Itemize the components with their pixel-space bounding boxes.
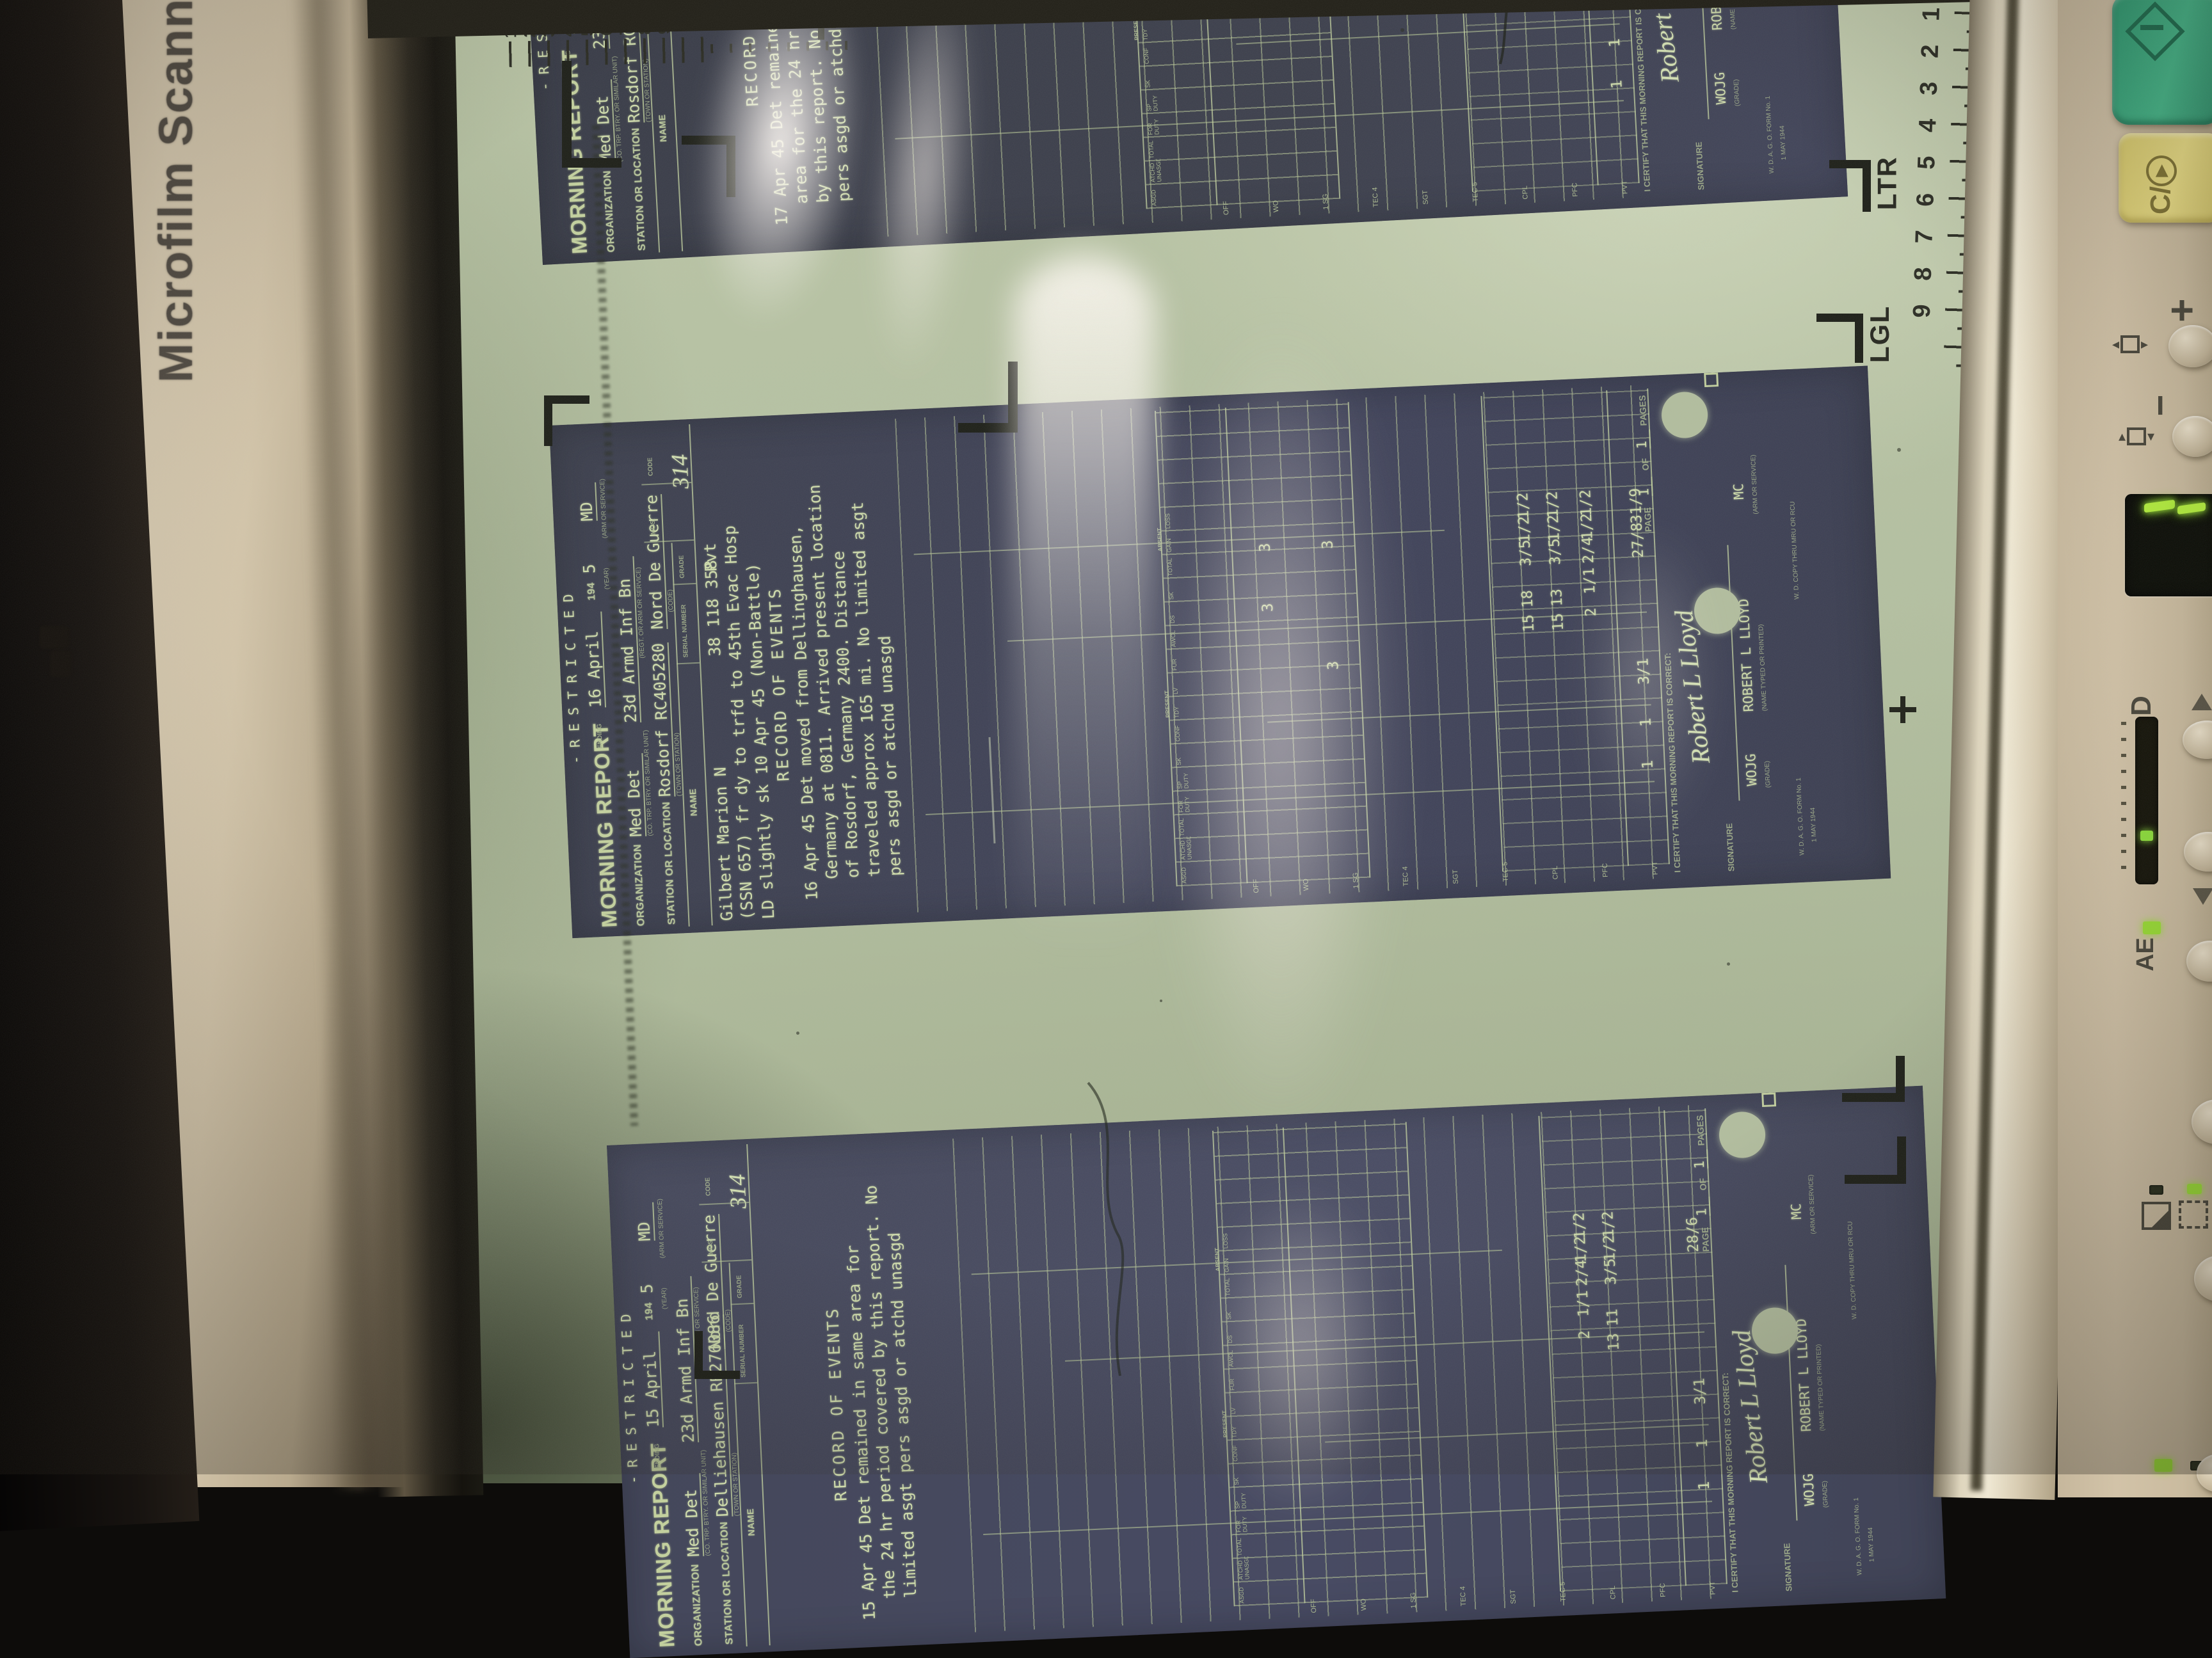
arm-caption: (ARM OR SERVICE)	[657, 1199, 666, 1259]
image-shift-horizontal-icon: ◂▸	[2112, 335, 2148, 353]
corner-square-mark	[1704, 372, 1719, 387]
strength-cell-value: 1	[1639, 760, 1656, 769]
ending-label: ENDING	[596, 724, 604, 749]
grade-column-header: GRADE	[678, 555, 686, 578]
strength-cell-value: 13	[1605, 1333, 1623, 1351]
name-column-header: NAME	[687, 788, 699, 817]
strength-cell-value: 1	[1608, 79, 1626, 89]
strength-cell-value: 18	[1519, 590, 1536, 609]
page-label: PAGE	[1642, 507, 1654, 532]
ending-label: ENDING	[653, 1444, 662, 1469]
strength-cell-value: 13	[1548, 589, 1566, 607]
grade-caption: (GRADE)	[1733, 79, 1741, 106]
strength-cell-value: 11	[1604, 1309, 1621, 1327]
grade-row-label: TEC 4	[1459, 1586, 1468, 1607]
ruler-number: 1	[1918, 7, 1946, 21]
pages-label: PAGES	[1695, 1115, 1706, 1146]
strength-cell-value: 2	[1583, 607, 1600, 617]
strength-column-header: LOSS	[1222, 1225, 1230, 1248]
serial-column-header: SERIAL NUMBER	[680, 604, 690, 658]
report-date: 15 April	[639, 1332, 664, 1428]
image-shift-vertical-icon: ▴▾	[2119, 427, 2154, 445]
density-indicator-slot	[2135, 717, 2158, 884]
negative-mode-led	[2149, 1185, 2163, 1195]
name-column-header: NAME	[657, 114, 668, 142]
form-date-footer: 1 MAY 1944	[1779, 125, 1788, 161]
year-prefix: 194	[643, 1302, 655, 1321]
organization-unit: Med Det	[680, 1473, 704, 1557]
strength-cell-value: 3/1	[1691, 1378, 1709, 1405]
year-caption: (YEAR)	[661, 1287, 669, 1309]
entry-serial: 38 118 358	[701, 560, 725, 657]
start-icon-bar	[2140, 25, 2163, 30]
strength-cell-value: 3/5	[1517, 539, 1535, 567]
strength-column-header: ASGD	[1238, 1581, 1246, 1604]
strength-column-header: LV	[1229, 1391, 1237, 1414]
grade-row-label: OFF	[1252, 879, 1260, 893]
strength-column-header: FUR	[1228, 1367, 1236, 1391]
strength-column-header: SK	[1225, 1296, 1233, 1319]
of-label: OF	[1697, 1178, 1708, 1191]
frame-bracket	[1845, 1136, 1906, 1184]
entry-grade: Pvt	[701, 543, 721, 572]
station-grid-system: Nord De Guerre	[700, 1214, 726, 1350]
station-label: STATION OR LOCATION	[661, 801, 678, 925]
strength-column-header: TDY	[1230, 1415, 1238, 1438]
classification: - R E S T R I C T E D	[561, 594, 584, 764]
mos-label: MOS.	[707, 1238, 715, 1255]
strength-column-header: TOTAL	[1178, 813, 1186, 836]
copy-routing-footer: W. D. COPY THRU MRU OR RCU	[1789, 501, 1800, 600]
frame-bracket	[694, 1331, 740, 1379]
strength-cell-value: 2/4	[1573, 1259, 1591, 1287]
page-number: 1	[1635, 477, 1653, 497]
strength-column-header: TOTAL	[1236, 1533, 1244, 1556]
grade-row-label: 1 SG	[1409, 1592, 1418, 1609]
strength-column-header: SK	[1232, 1462, 1240, 1485]
name-caption: (NAME TYPED OR PRINTED)	[1815, 1344, 1826, 1431]
density-scale-dots	[2121, 722, 2126, 882]
strength-cell-value: 2	[1576, 1330, 1594, 1340]
station-label: STATION OR LOCATION	[630, 127, 648, 251]
signature-label: SIGNATURE	[1724, 823, 1736, 872]
signature-label: SIGNATURE	[1782, 1543, 1793, 1591]
ae-label: AE	[2132, 937, 2160, 971]
density-down-arrow-icon	[2193, 888, 2212, 905]
strength-column-header: TOTAL	[1224, 1273, 1231, 1296]
organization-label: ORGANIZATION	[632, 844, 648, 927]
strength-column-header: CONF	[1142, 41, 1150, 64]
strength-column-header: AWOL	[1227, 1344, 1235, 1367]
strength-cell-value: 3/5	[1602, 1258, 1620, 1286]
strength-column-header: GAIN	[1222, 1249, 1230, 1272]
report-date: 16 April	[582, 612, 606, 708]
signature-label: SIGNATURE	[1694, 141, 1706, 190]
grade-row-label: WO	[1272, 200, 1280, 213]
pages-label: PAGES	[1637, 395, 1649, 426]
frame-bracket	[1842, 1056, 1905, 1102]
strength-cell-value: 3	[1260, 603, 1277, 612]
ruler-number: 7	[1911, 230, 1939, 244]
organization-label: ORGANIZATION	[690, 1564, 705, 1646]
clear-label: C/	[2145, 186, 2176, 214]
strength-column-header: TOTAL	[1148, 136, 1155, 159]
strength-column-header: SK	[1144, 65, 1151, 88]
zoom-plus-label: +	[2158, 298, 2206, 322]
form-number-footer: W. D. A. G. O. FORM No. 1	[1795, 777, 1806, 856]
organization-label: ORGANIZATION	[602, 170, 618, 253]
strength-column-header: FOR DUTY	[1235, 1509, 1249, 1533]
strength-column-header: CONF	[1174, 719, 1182, 742]
strength-column-header: DS	[1226, 1320, 1233, 1343]
clear-stop-icon: C/▶	[2145, 144, 2199, 214]
grade-row-label: SGT	[1452, 870, 1460, 884]
grade-row-label: 1 SG	[1352, 872, 1360, 889]
grade-caption: (GRADE)	[1764, 761, 1772, 788]
film-frame-middle-document: - R E S T R I C T E D MORNING REPORT END…	[549, 365, 1891, 938]
form-date-footer: 1 MAY 1944	[1867, 1527, 1875, 1563]
brand-label: Microfilm Scanner 30	[148, 0, 225, 383]
ruler-number: 2	[1917, 44, 1945, 58]
strength-column-header: CONF	[1231, 1439, 1239, 1462]
grade-row-label: WO	[1359, 1598, 1368, 1611]
ruler-number: 8	[1910, 267, 1938, 281]
positive-film-icon	[2179, 1200, 2208, 1229]
code-label: CODE	[646, 458, 654, 476]
ruler-number: 6	[1912, 193, 1940, 207]
of-label: OF	[1640, 458, 1651, 471]
strength-cell-value: 1	[1638, 717, 1655, 727]
frame-bracket	[958, 362, 1018, 433]
letter-size-label: LTR	[1871, 156, 1902, 211]
strength-column-header: TDY	[1173, 695, 1180, 718]
panel-led	[2154, 1459, 2172, 1472]
ae-led	[2143, 921, 2161, 934]
copy-routing-footer: W. D. COPY THRU MRU OR RCU	[1847, 1221, 1858, 1319]
dust-speck	[1897, 448, 1901, 452]
form-date-footer: 1 MAY 1944	[1809, 808, 1818, 843]
punch-hole	[1718, 1111, 1766, 1159]
zoom-minus-label: −	[2138, 395, 2181, 417]
arm-service-caption: (ARM OR SERVICE)	[1807, 1174, 1817, 1234]
page-label: PAGE	[1700, 1227, 1711, 1252]
classification: - R E S T R I C T E D	[618, 1314, 641, 1484]
station-value: Rosdorf RC405280	[649, 642, 676, 797]
grade-caption: (GRADE)	[1822, 1481, 1830, 1508]
strength-column-header: SP DUTY	[1233, 1485, 1247, 1509]
pages-count: 1	[1691, 1149, 1708, 1169]
code-label: CODE	[704, 1177, 712, 1196]
grade-row-label: WO	[1302, 879, 1310, 891]
strength-column-header: SK	[1167, 577, 1175, 600]
counter-display	[2125, 494, 2212, 596]
arm-of-service: MD	[634, 1202, 655, 1241]
strength-cell-value: 3/5	[1546, 538, 1564, 566]
strength-column-header: FOR DUTY	[1177, 789, 1191, 813]
record-of-events-title: RECORD OF EVENTS	[823, 1306, 851, 1502]
strength-cell-value: 15	[1520, 614, 1537, 633]
form-number-footer: W. D. A. G. O. FORM No. 1	[1853, 1497, 1864, 1575]
form-number-footer: W. D. A. G. O. FORM No. 1	[1765, 95, 1775, 173]
form-title: MORNING REPORT	[646, 1442, 679, 1648]
strength-column-header: DS	[1168, 600, 1176, 623]
strength-column-header: ATCHD UNASGD	[1179, 836, 1193, 860]
circled-play-icon: ▶	[2146, 155, 2177, 186]
year-prefix: 194	[586, 582, 598, 601]
strength-cell-value: 15	[1550, 613, 1567, 632]
strength-column-header: TOTAL	[1166, 553, 1174, 576]
pages-count: 1	[1633, 429, 1651, 449]
film-frame-bottom-document: - R E S T R I C T E D MORNING REPORT END…	[607, 1086, 1946, 1658]
grade-row-label: OFF	[1222, 201, 1230, 216]
dust-speck	[796, 1032, 799, 1035]
ruler-number: 4	[1914, 118, 1943, 132]
zoom-minus-knob[interactable]	[2172, 416, 2212, 457]
zoom-plus-knob[interactable]	[2168, 325, 2212, 367]
station-label: STATION OR LOCATION	[719, 1521, 736, 1645]
strength-column-header: SP DUTY	[1145, 88, 1159, 111]
strength-column-header: FOR DUTY	[1146, 111, 1160, 135]
strength-column-header: LOSS	[1164, 506, 1172, 529]
frame-bracket	[562, 61, 621, 168]
strength-cell-value: 3/1	[1635, 658, 1653, 685]
grade-row-label: TEC 4	[1402, 866, 1410, 887]
strength-cell-value: 2/4	[1580, 536, 1598, 564]
signer-grade: WOJG	[1800, 1473, 1817, 1506]
strength-cell-value: 3	[1319, 540, 1336, 550]
strength-column-header: ASGD	[1150, 183, 1158, 206]
strength-cell-value: 3	[1325, 660, 1342, 670]
year-digit: 5	[580, 564, 599, 574]
letter-bracket	[1829, 160, 1871, 212]
frame-position-cross-icon	[1889, 696, 1916, 723]
frame-bracket	[544, 395, 589, 446]
strength-column-header: FUR	[1171, 648, 1178, 671]
station-grid-system: Nord De Guerre	[642, 494, 668, 630]
dust-speck	[1727, 962, 1730, 966]
strength-table-grid	[1156, 402, 1369, 886]
positive-mode-led	[2187, 1184, 2202, 1194]
grade-row-label: TEC 4	[1371, 187, 1380, 207]
display-segment	[2177, 502, 2206, 514]
strength-column-header: AWOL	[1169, 624, 1177, 647]
strength-table-grid	[1214, 1122, 1427, 1606]
corner-square-mark	[1761, 1092, 1776, 1107]
strength-cell-value: 1	[1696, 1481, 1713, 1490]
page-number: 1	[1693, 1197, 1710, 1216]
arm-service-caption: (ARM OR SERVICE)	[1750, 454, 1759, 514]
strength-cell-value: 3	[1256, 543, 1274, 552]
strength-column-header: GAIN	[1165, 529, 1173, 552]
frame-bracket	[682, 136, 735, 197]
grade-row-label: SGT	[1509, 1590, 1518, 1604]
legal-size-label: LGL	[1864, 305, 1895, 363]
grade-row-label: OFF	[1310, 1598, 1318, 1613]
signer-grade: WOJG	[1712, 72, 1729, 105]
name-column-header: NAME	[745, 1508, 757, 1536]
strength-cell-value: 1	[1607, 38, 1624, 47]
strength-column-header: LV	[1171, 671, 1179, 694]
strength-cell-value: 28/6	[1684, 1216, 1702, 1253]
name-caption: (NAME TYPED OR PRINTED)	[1758, 624, 1768, 711]
ruler-number: 9	[1909, 304, 1937, 318]
signer-arm: MC	[1731, 483, 1747, 500]
grade-row-label: SGT	[1422, 190, 1430, 205]
strength-column-header: SP DUTY	[1176, 765, 1190, 789]
strength-column-header: ASGD	[1180, 861, 1188, 884]
ruler-minor-ticks	[710, 41, 858, 54]
display-segment	[2144, 500, 2175, 513]
legal-bracket	[1816, 314, 1863, 363]
ruler-number: 5	[1913, 155, 1941, 170]
mos-label: MOS.	[650, 518, 657, 535]
density-up-arrow-icon	[2192, 694, 2212, 710]
strength-column-header: ATCHD UNASGD	[1149, 159, 1163, 182]
dust-speck	[1400, 28, 1404, 32]
punch-hole	[1660, 391, 1708, 439]
strength-column-header: ATCHD UNASGD	[1237, 1556, 1251, 1580]
logo-fragment	[40, 626, 69, 649]
morning-report-form: - R E S T R I C T E D MORNING REPORT END…	[607, 1086, 1946, 1657]
density-label: D	[2126, 696, 2158, 716]
strength-cell-value: 1/1	[1581, 567, 1599, 594]
dust-speck	[1160, 1000, 1162, 1002]
ruler-number: 3	[1916, 81, 1944, 95]
grade-row-label: 1 SG	[1322, 193, 1330, 210]
signer-grade: WOJG	[1743, 753, 1759, 786]
year-digit: 5	[637, 1284, 657, 1294]
strength-table-grid2	[1450, 0, 1640, 192]
grade-column-header: GRADE	[735, 1275, 744, 1298]
strength-column-header: SK	[1174, 742, 1182, 765]
morning-report-form: - R E S T R I C T E D MORNING REPORT END…	[549, 366, 1889, 937]
arm-of-service: MD	[576, 482, 598, 522]
logo-fragment	[50, 650, 72, 677]
signer-arm: MC	[1788, 1203, 1804, 1220]
density-level-led	[2140, 831, 2153, 841]
negative-film-icon	[2142, 1202, 2171, 1230]
strength-cell-value: 1	[1694, 1439, 1711, 1448]
strength-cell-value: 1/1	[1575, 1290, 1592, 1318]
